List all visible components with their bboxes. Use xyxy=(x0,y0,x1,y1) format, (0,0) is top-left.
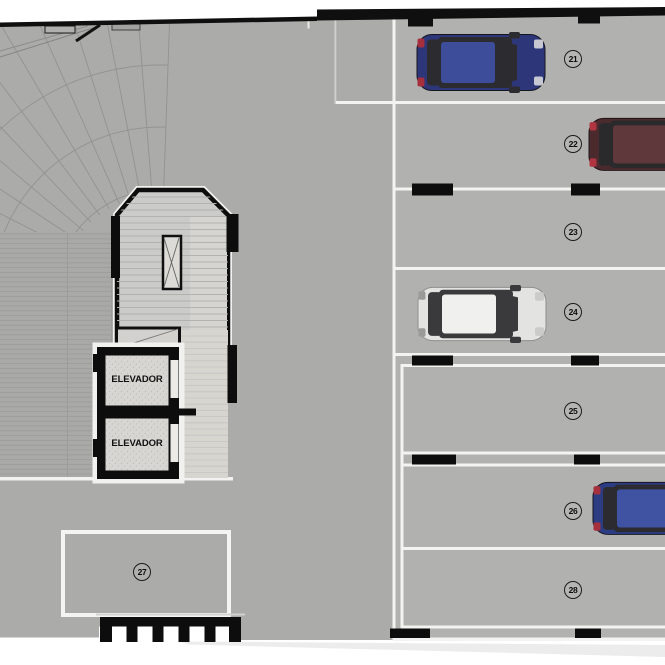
elevator-2-door-gap xyxy=(171,424,179,462)
gate-tooth xyxy=(179,617,190,642)
elevator-2-label: ELEVADOR xyxy=(105,438,169,449)
box-bottom-line xyxy=(401,626,665,629)
car-mirror xyxy=(510,337,521,343)
gate-tooth xyxy=(205,617,216,642)
wall-door-recess xyxy=(112,24,140,30)
outer-bottom-line xyxy=(393,638,665,642)
space-badge-22: 22 xyxy=(564,135,582,153)
car-headlight xyxy=(534,40,543,49)
gate-tooth xyxy=(153,617,164,642)
car-space-26 xyxy=(593,480,665,537)
floor-plan-page: 21 22 23 24 25 26 27 28 ELEVADOR ELEVADO… xyxy=(0,0,665,665)
line-23-24 xyxy=(395,267,665,270)
space-badge-23: 23 xyxy=(564,223,582,241)
car-taillight xyxy=(594,486,601,494)
top-wall-tab-1 xyxy=(408,17,433,27)
exterior-bottom-gate xyxy=(99,627,241,665)
line-26-28 xyxy=(401,547,665,550)
car-headlight xyxy=(535,327,544,336)
wall-step xyxy=(45,26,75,33)
car-mirror xyxy=(510,285,521,291)
line-21-22 xyxy=(336,101,665,104)
elevator-divider-stub xyxy=(168,409,196,416)
car-taillight xyxy=(590,158,597,166)
car-headlight xyxy=(534,77,543,86)
column-marker xyxy=(390,629,430,639)
column-marker xyxy=(574,455,600,465)
column-marker xyxy=(571,184,600,196)
car-roof xyxy=(613,125,665,163)
elevator-1-label: ELEVADOR xyxy=(105,374,169,385)
car-space-21 xyxy=(417,32,545,93)
car-headlight xyxy=(535,292,544,301)
car-rear-glass xyxy=(428,292,442,336)
column-marker xyxy=(412,356,453,366)
car-rear-glass xyxy=(599,123,613,166)
gate-tooth xyxy=(229,617,241,642)
car-taillight xyxy=(419,328,426,337)
floor-plan-canvas xyxy=(0,0,665,665)
column-marker xyxy=(412,184,453,196)
core-right-tab xyxy=(227,214,239,252)
aisle-divider-line xyxy=(393,19,396,640)
space-badge-27: 27 xyxy=(133,563,151,581)
car-rear-glass xyxy=(427,40,441,86)
car-taillight xyxy=(419,291,426,300)
car-roof xyxy=(441,42,495,83)
car-windshield xyxy=(496,292,518,336)
space-badge-21: 21 xyxy=(564,50,582,68)
car-taillight xyxy=(590,122,597,130)
car-roof xyxy=(442,295,496,334)
gate-bar xyxy=(100,617,241,627)
car-taillight xyxy=(418,39,425,48)
space-badge-25: 25 xyxy=(564,402,582,420)
car-roof xyxy=(617,489,665,527)
car-mirror xyxy=(509,32,520,39)
elevator-left-tab-2 xyxy=(93,439,98,457)
elevator-left-tab-1 xyxy=(93,354,98,372)
car-space-24 xyxy=(418,285,546,343)
column-marker xyxy=(575,629,601,639)
car-mirror xyxy=(509,87,520,94)
exterior-bottom-left xyxy=(0,638,100,665)
column-marker xyxy=(412,455,456,465)
space-badge-28: 28 xyxy=(564,581,582,599)
car-taillight xyxy=(418,78,425,87)
corridor-right-wall xyxy=(228,345,238,403)
top-wall-tab-2 xyxy=(578,15,600,24)
car-rear-glass xyxy=(603,487,617,530)
column-marker xyxy=(571,356,599,366)
core-left-wall xyxy=(111,216,120,278)
line-25-26-a xyxy=(401,452,665,455)
space-badge-26: 26 xyxy=(564,502,582,520)
box-left-line xyxy=(401,364,404,628)
car-taillight xyxy=(594,522,601,530)
gate-tooth xyxy=(127,617,138,642)
car-windshield xyxy=(495,40,517,86)
space-badge-24: 24 xyxy=(564,303,582,321)
car-space-22 xyxy=(589,116,665,173)
gate-tooth xyxy=(100,617,112,642)
stall21-left-line xyxy=(335,20,337,104)
gate-top-rail xyxy=(96,614,245,616)
elevator-1-door-gap xyxy=(171,360,179,398)
